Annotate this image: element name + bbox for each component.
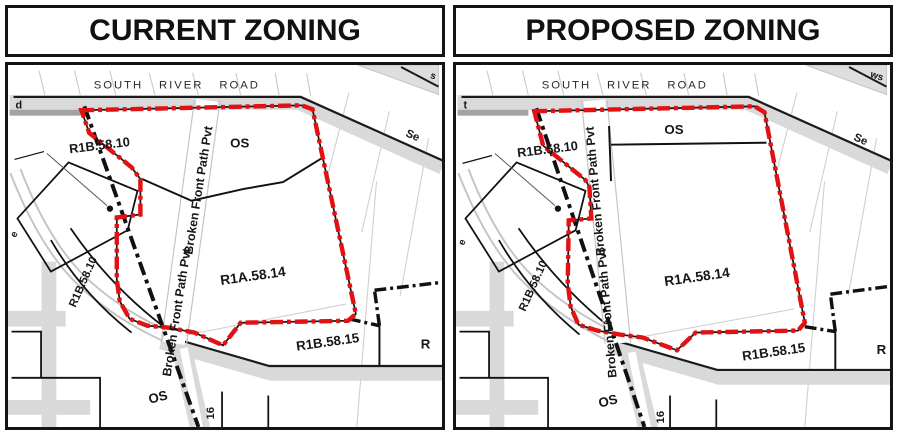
- road-dark-shoulder: [458, 110, 529, 116]
- zone-os-top-label: OS: [664, 122, 683, 137]
- proposed-zoning-title: PROPOSED ZONING: [525, 14, 820, 48]
- lot-16-label: 16: [655, 411, 667, 424]
- current-zoning-title-box: CURRENT ZONING: [5, 5, 445, 57]
- dot-leader-line: [495, 154, 555, 206]
- parcel-dot: [107, 205, 113, 211]
- zone-r1b15-label: R1B.58.15: [741, 340, 807, 364]
- dot-leader-line: [47, 154, 107, 206]
- proposed-zoning-map: SOUTH RIVER ROAD t ws Se e R1B.58.10 R1B…: [453, 62, 893, 430]
- east-dashdot-parcel: [805, 286, 890, 370]
- parcel-r-cut-label: R: [877, 342, 887, 357]
- zone-os-top-label: OS: [230, 136, 249, 151]
- proposed-zoning-map-svg: SOUTH RIVER ROAD t ws Se e R1B.58.10 R1B…: [456, 65, 890, 427]
- street-label: SOUTH RIVER ROAD: [94, 80, 260, 92]
- os-divider-straight: [611, 143, 766, 145]
- proposed-zoning-title-box: PROPOSED ZONING: [453, 5, 893, 57]
- parcel-dot: [555, 205, 561, 211]
- zone-os-bottom-label: OS: [597, 391, 619, 410]
- lot-16-label: 16: [205, 407, 217, 420]
- parcel-r-cut-label: R: [421, 336, 431, 351]
- edge-side-label: e: [8, 229, 21, 239]
- zone-r1b15-label: R1B.58.15: [295, 330, 361, 354]
- panel-current-zoning: CURRENT ZONING: [5, 5, 445, 430]
- parcel-r1b5810-label: R1B.58.10: [516, 138, 578, 160]
- panel-proposed-zoning: PROPOSED ZONING: [453, 5, 893, 430]
- os-divider-zigzag: [142, 158, 321, 200]
- zone-r1a-label: R1A.58.14: [219, 264, 287, 288]
- edge-left-label: d: [15, 99, 22, 111]
- zone-os-bottom-label: OS: [147, 387, 169, 406]
- edge-side-label: e: [456, 237, 469, 247]
- zone-r1a-label: R1A.58.14: [663, 265, 731, 289]
- label-leader-line: [462, 156, 492, 164]
- edge-left-label: t: [463, 99, 467, 111]
- current-zoning-map-svg: SOUTH RIVER ROAD d s Se e R1B.58.10 R1B.…: [8, 65, 442, 427]
- street-label: SOUTH RIVER ROAD: [542, 80, 708, 92]
- current-zoning-map: SOUTH RIVER ROAD d s Se e R1B.58.10 R1B.…: [5, 62, 445, 430]
- current-zoning-title: CURRENT ZONING: [89, 14, 361, 48]
- label-leader-line: [14, 152, 44, 160]
- road-se-label: Se: [404, 128, 422, 145]
